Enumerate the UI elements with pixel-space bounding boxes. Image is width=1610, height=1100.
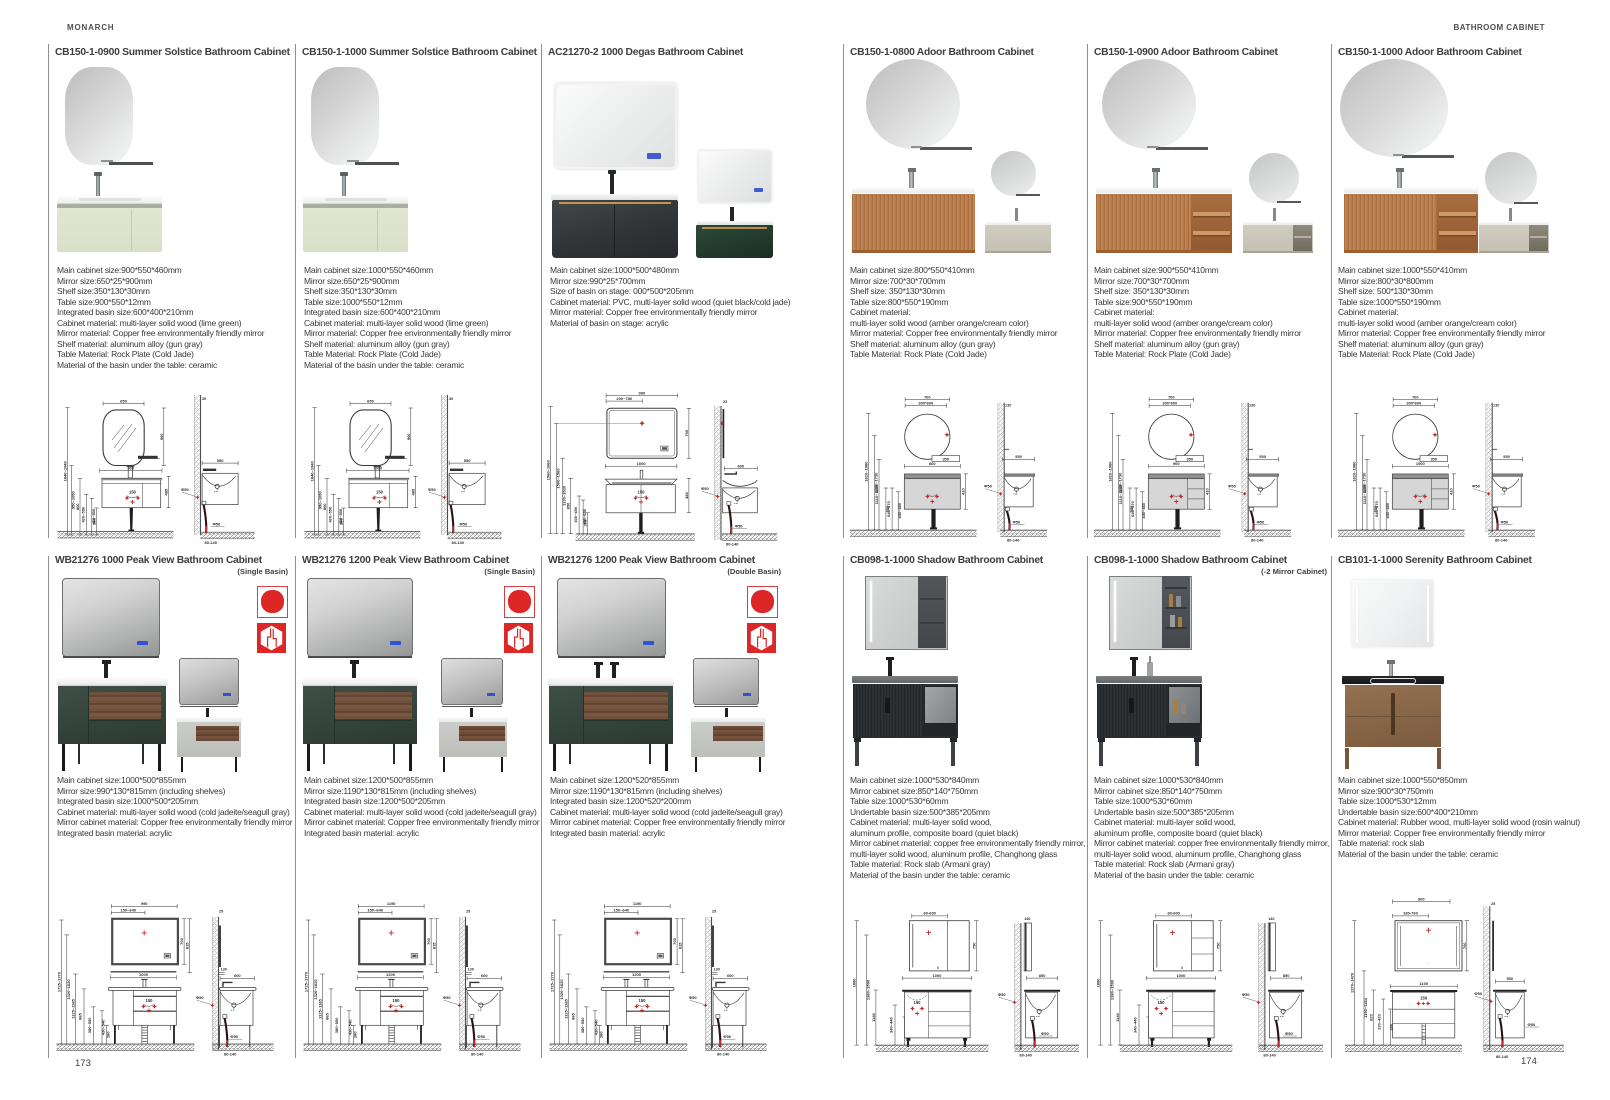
svg-text:550: 550 [217, 458, 224, 463]
svg-text:280: 280 [339, 517, 344, 524]
svg-text:440~460: 440~460 [897, 502, 902, 518]
svg-text:300*600: 300*600 [918, 400, 934, 405]
svg-text:420~550: 420~550 [81, 506, 86, 522]
svg-text:340~440: 340~440 [889, 1016, 894, 1032]
svg-text:150: 150 [146, 998, 154, 1003]
svg-text:1810~1980: 1810~1980 [1351, 461, 1356, 482]
svg-text:485: 485 [411, 488, 416, 495]
svg-text:1810~1980: 1810~1980 [863, 461, 868, 482]
svg-text:1125~1185: 1125~1185 [317, 998, 322, 1018]
svg-text:220~420: 220~420 [1377, 1013, 1382, 1029]
svg-text:1125~1185: 1125~1185 [563, 998, 568, 1018]
svg-text:990: 990 [639, 390, 646, 395]
svg-text:1000: 1000 [139, 972, 149, 977]
svg-text:800: 800 [929, 461, 936, 466]
svg-text:900: 900 [159, 433, 164, 440]
svg-text:640~670: 640~670 [1130, 500, 1135, 516]
svg-text:1320~1620: 1320~1620 [66, 979, 71, 1000]
svg-text:1125~1185: 1125~1185 [70, 998, 75, 1018]
svg-text:8: 8 [937, 966, 939, 970]
svg-text:650: 650 [367, 398, 374, 403]
svg-text:650: 650 [120, 398, 127, 403]
svg-text:1200: 1200 [386, 972, 396, 977]
svg-text:1380~1590: 1380~1590 [865, 979, 870, 1000]
svg-text:1560~1660: 1560~1660 [546, 459, 551, 480]
svg-text:350: 350 [942, 456, 949, 461]
svg-text:30: 30 [202, 397, 206, 401]
svg-text:Φ50: Φ50 [477, 1034, 486, 1039]
svg-text:25: 25 [723, 400, 727, 404]
svg-text:350: 350 [1430, 456, 1437, 461]
svg-text:410: 410 [1449, 487, 1454, 494]
svg-text:Φ50: Φ50 [1528, 1022, 1537, 1027]
svg-text:1880: 1880 [1096, 978, 1101, 988]
svg-text:130: 130 [1493, 404, 1499, 408]
svg-text:130: 130 [1005, 404, 1011, 408]
svg-text:Φ50: Φ50 [1472, 484, 1481, 489]
svg-text:1140: 1140 [1115, 1012, 1120, 1021]
svg-text:25: 25 [712, 910, 716, 914]
svg-text:800: 800 [75, 503, 80, 510]
svg-text:350: 350 [1186, 456, 1193, 461]
svg-text:300*600: 300*600 [1406, 400, 1422, 405]
svg-text:280: 280 [92, 517, 97, 524]
svg-text:1190: 1190 [633, 901, 642, 906]
svg-text:1725~1770: 1725~1770 [549, 971, 554, 992]
svg-text:130: 130 [468, 968, 474, 972]
svg-text:850: 850 [1283, 973, 1290, 978]
svg-text:340~440: 340~440 [1133, 1016, 1138, 1032]
svg-text:865: 865 [571, 1012, 576, 1019]
svg-text:80-140: 80-140 [471, 1052, 484, 1057]
svg-text:150~640: 150~640 [613, 908, 629, 913]
svg-text:150: 150 [638, 490, 646, 495]
svg-text:815: 815 [678, 942, 683, 949]
svg-text:8: 8 [1181, 966, 1183, 970]
svg-text:Φ50: Φ50 [1242, 992, 1251, 997]
svg-text:1190: 1190 [387, 901, 396, 906]
svg-text:1200: 1200 [632, 972, 642, 977]
svg-text:150: 150 [393, 998, 401, 1003]
svg-text:Φ50: Φ50 [1285, 1031, 1294, 1036]
svg-text:1370~1470: 1370~1470 [1349, 972, 1354, 993]
svg-text:80-140: 80-140 [205, 540, 218, 545]
svg-text:400~450: 400~450 [573, 506, 578, 522]
svg-text:1500~1560: 1500~1560 [555, 468, 560, 489]
svg-text:850: 850 [566, 502, 571, 509]
svg-text:1725~1770: 1725~1770 [303, 971, 308, 992]
svg-text:Φ50: Φ50 [998, 992, 1007, 997]
svg-text:280: 280 [352, 1031, 357, 1038]
svg-text:900: 900 [406, 433, 411, 440]
svg-text:Φ50: Φ50 [1501, 519, 1510, 524]
svg-text:Φ50: Φ50 [213, 522, 222, 527]
svg-text:815: 815 [185, 942, 190, 949]
svg-text:640~670: 640~670 [886, 500, 891, 516]
svg-text:80-140: 80-140 [1495, 538, 1508, 543]
svg-text:150: 150 [1158, 1000, 1166, 1005]
svg-text:420~550: 420~550 [328, 506, 333, 522]
svg-text:380~550: 380~550 [87, 1017, 92, 1033]
svg-text:Φ50: Φ50 [735, 524, 744, 529]
svg-text:Φ50: Φ50 [428, 487, 437, 492]
svg-text:80-140: 80-140 [1263, 1053, 1276, 1058]
svg-text:150: 150 [1420, 996, 1428, 1001]
svg-text:80-140: 80-140 [224, 1052, 237, 1057]
svg-text:80-140: 80-140 [726, 542, 739, 547]
svg-text:600: 600 [727, 973, 734, 978]
svg-text:1140: 1140 [871, 1012, 876, 1021]
svg-text:640~670: 640~670 [1374, 500, 1379, 516]
svg-text:700: 700 [426, 937, 431, 944]
svg-text:60-600: 60-600 [1167, 911, 1180, 916]
svg-text:1100: 1100 [1419, 981, 1428, 986]
svg-text:480: 480 [684, 491, 689, 498]
svg-text:485: 485 [164, 488, 169, 495]
svg-text:80-140: 80-140 [1251, 538, 1264, 543]
svg-text:150~640: 150~640 [367, 908, 383, 913]
svg-text:25: 25 [219, 910, 223, 914]
svg-text:Φ50: Φ50 [701, 486, 710, 491]
svg-text:150: 150 [129, 490, 137, 495]
svg-text:865: 865 [78, 1012, 83, 1019]
svg-text:440~460: 440~460 [1141, 502, 1146, 518]
svg-text:Φ50: Φ50 [1228, 484, 1237, 489]
svg-text:Φ50: Φ50 [984, 484, 993, 489]
svg-text:150: 150 [639, 998, 647, 1003]
svg-text:380~550: 380~550 [334, 1017, 339, 1033]
svg-text:130: 130 [1249, 404, 1255, 408]
svg-text:700: 700 [1462, 942, 1467, 949]
svg-text:1110~1180: 1110~1180 [1362, 484, 1367, 504]
svg-text:600: 600 [737, 463, 744, 468]
svg-text:25: 25 [466, 910, 470, 914]
svg-text:1000: 1000 [1416, 461, 1426, 466]
svg-text:Φ50: Φ50 [1474, 991, 1483, 996]
svg-text:30: 30 [449, 397, 453, 401]
svg-text:1000: 1000 [932, 973, 942, 978]
svg-text:80-140: 80-140 [717, 1052, 730, 1057]
svg-text:Φ50: Φ50 [1041, 1031, 1050, 1036]
svg-text:550: 550 [464, 458, 471, 463]
svg-text:1000: 1000 [1176, 973, 1186, 978]
svg-text:300*600: 300*600 [1162, 400, 1178, 405]
svg-text:150: 150 [914, 1000, 922, 1005]
svg-text:25: 25 [1491, 902, 1495, 906]
svg-text:Φ50: Φ50 [1013, 519, 1022, 524]
svg-text:Φ50: Φ50 [723, 1034, 732, 1039]
svg-text:750: 750 [971, 942, 976, 949]
svg-text:··: ·· [1427, 962, 1429, 966]
svg-text:410: 410 [961, 487, 966, 494]
svg-text:1110~1180: 1110~1180 [874, 484, 879, 504]
svg-text:900: 900 [1418, 896, 1425, 901]
svg-text:865: 865 [325, 1012, 330, 1019]
svg-text:550: 550 [1506, 976, 1513, 981]
svg-text:1880: 1880 [852, 978, 857, 988]
svg-text:150: 150 [376, 490, 384, 495]
svg-text:820: 820 [1369, 1013, 1374, 1020]
svg-text:410: 410 [1205, 487, 1210, 494]
svg-text:550: 550 [1503, 454, 1510, 459]
svg-text:140: 140 [1024, 917, 1030, 921]
svg-text:Φ50: Φ50 [181, 487, 190, 492]
svg-text:80-140: 80-140 [1007, 538, 1020, 543]
svg-text:60-600: 60-600 [923, 911, 936, 916]
svg-text:700: 700 [179, 937, 184, 944]
svg-text:440~460: 440~460 [1385, 502, 1390, 518]
svg-text:380~550: 380~550 [580, 1017, 585, 1033]
svg-text:600: 600 [481, 973, 488, 978]
svg-text:990: 990 [141, 901, 148, 906]
svg-text:800: 800 [322, 503, 327, 510]
svg-text:700: 700 [672, 937, 677, 944]
svg-text:700: 700 [1412, 394, 1419, 399]
svg-text:Φ50: Φ50 [460, 522, 469, 527]
svg-text:850: 850 [1039, 973, 1046, 978]
svg-text:205: 205 [583, 519, 588, 526]
svg-text:Φ50: Φ50 [443, 995, 452, 1000]
svg-text:1320~1620: 1320~1620 [559, 979, 564, 1000]
svg-text:1190~1154: 1190~1154 [1363, 997, 1368, 1017]
svg-text:550: 550 [1015, 454, 1022, 459]
svg-text:750: 750 [1215, 942, 1220, 949]
svg-text:700: 700 [924, 394, 931, 399]
svg-text:140: 140 [1268, 917, 1274, 921]
svg-text:550: 550 [1259, 454, 1266, 459]
svg-text:130: 130 [714, 968, 720, 972]
svg-text:1840~1940: 1840~1940 [63, 460, 68, 481]
svg-text:80-140: 80-140 [452, 540, 465, 545]
svg-text:1725~1770: 1725~1770 [56, 971, 61, 992]
svg-text:200~780: 200~780 [616, 396, 632, 401]
svg-text:1320~1620: 1320~1620 [313, 979, 318, 1000]
svg-text:1110~1180: 1110~1180 [1118, 484, 1123, 504]
svg-text:180-760: 180-760 [1403, 911, 1418, 916]
svg-text:80-140: 80-140 [1496, 1054, 1509, 1059]
svg-text:Φ50: Φ50 [689, 995, 698, 1000]
svg-text:Φ50: Φ50 [1257, 519, 1266, 524]
svg-text:815: 815 [432, 942, 437, 949]
svg-text:1840~1940: 1840~1940 [310, 460, 315, 481]
svg-text:80-140: 80-140 [1019, 1053, 1032, 1058]
svg-text:280: 280 [105, 1031, 110, 1038]
svg-text:130: 130 [221, 968, 227, 972]
svg-text:900: 900 [1173, 461, 1180, 466]
svg-text:1000: 1000 [637, 461, 647, 466]
svg-text:1810~1980: 1810~1980 [1107, 461, 1112, 482]
svg-text:150~640: 150~640 [120, 908, 136, 913]
svg-text:Φ50: Φ50 [230, 1034, 239, 1039]
svg-text:1380~1590: 1380~1590 [1109, 979, 1114, 1000]
svg-text:700: 700 [1168, 394, 1175, 399]
svg-text:280: 280 [598, 1031, 603, 1038]
svg-text:Φ50: Φ50 [196, 995, 205, 1000]
svg-text:700: 700 [684, 429, 689, 436]
svg-text:600: 600 [234, 973, 241, 978]
